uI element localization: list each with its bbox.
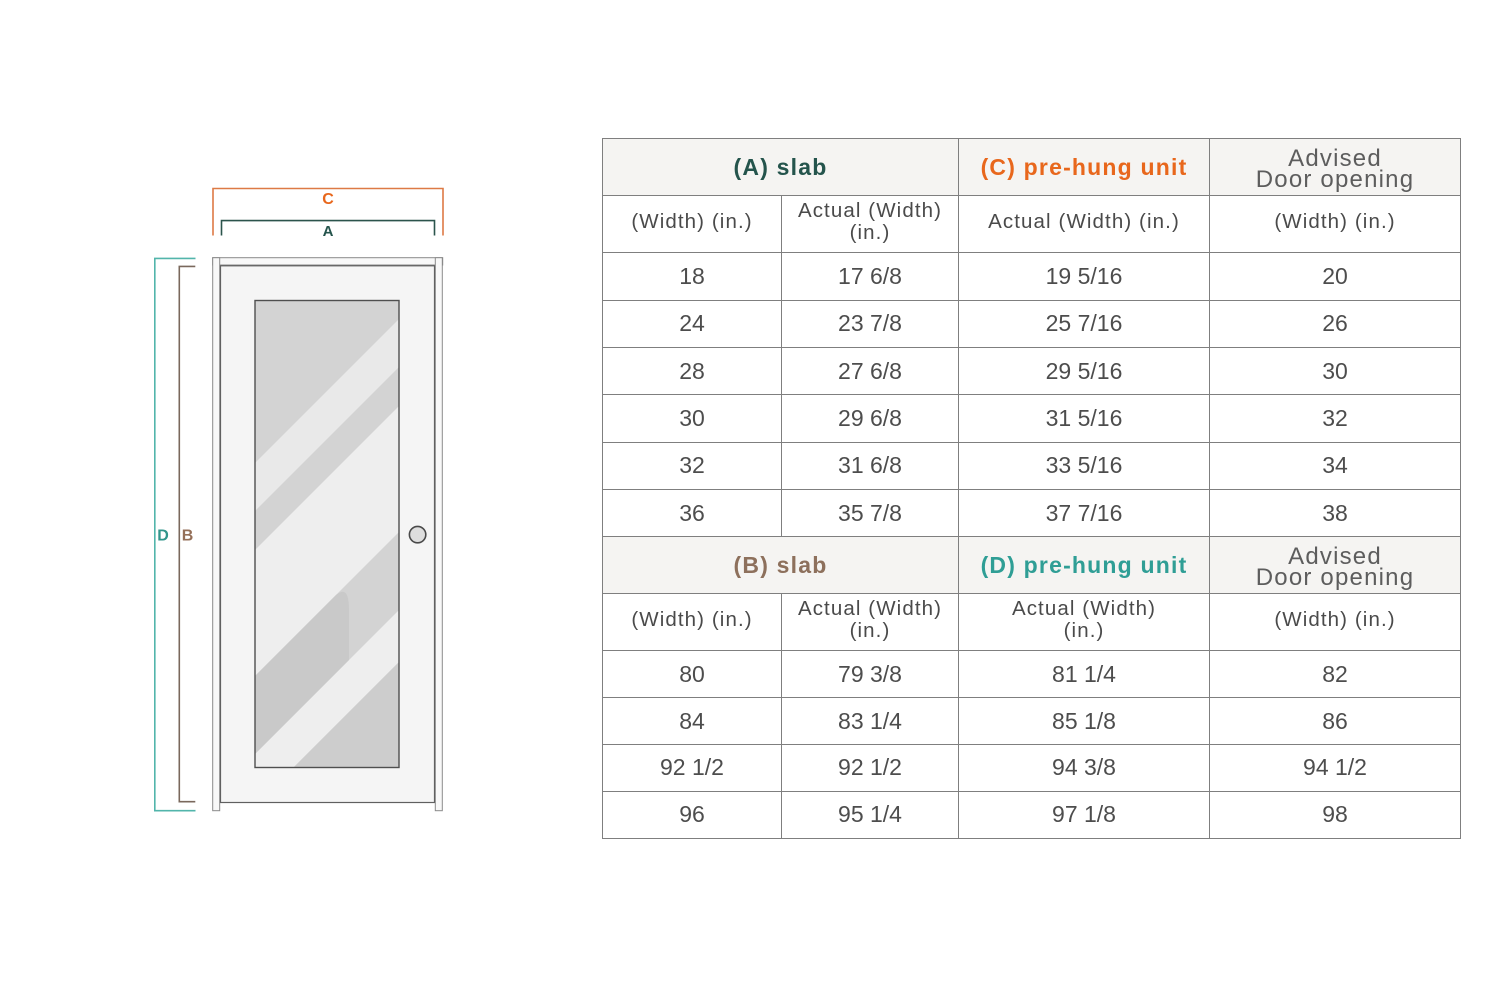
svg-text:B: B bbox=[182, 528, 194, 545]
svg-text:D: D bbox=[157, 528, 169, 545]
svg-text:A: A bbox=[323, 223, 334, 240]
svg-text:C: C bbox=[322, 191, 334, 208]
